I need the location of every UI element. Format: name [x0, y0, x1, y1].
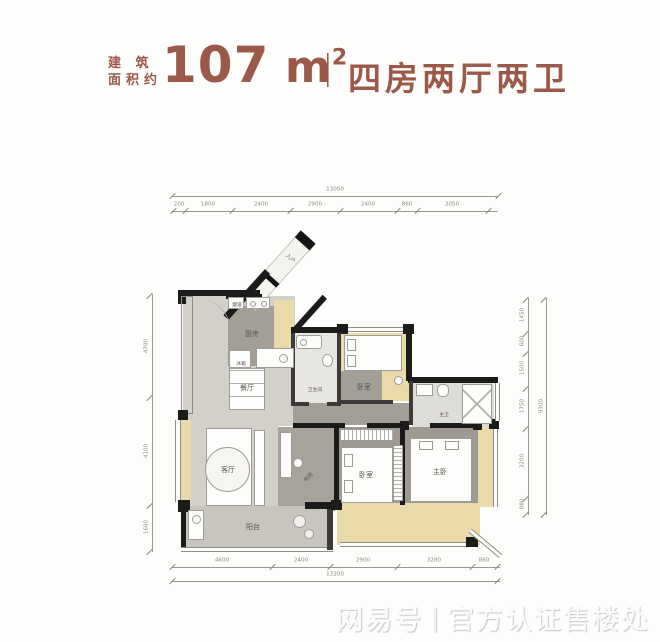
watermark-brand: 网易号	[336, 598, 423, 637]
left-shelf-hatch	[181, 296, 193, 414]
bathroom-label: 卫生间	[308, 385, 322, 392]
dim-bottom-total: 13200	[326, 571, 344, 577]
area-prefix-line2: 面积约	[108, 72, 162, 89]
area-value: 107 m2	[162, 36, 348, 94]
flue-label: 烟道	[232, 300, 242, 307]
pillow	[344, 454, 353, 467]
washer-drum-icon	[192, 515, 201, 524]
dim-right-seg: 1500	[519, 361, 525, 375]
dim-left-seg: 1600	[143, 520, 149, 534]
dim-top-total-line	[172, 196, 498, 197]
dim-left-line	[152, 294, 153, 552]
study-chair	[293, 458, 303, 468]
plant-icon	[293, 515, 306, 528]
dim-bottom-total-line	[172, 581, 500, 582]
entry-corridor-cap	[295, 230, 316, 250]
pillow	[419, 441, 433, 450]
watermark-separator: |	[431, 604, 439, 632]
master-bath-sink	[416, 384, 433, 396]
stove	[246, 297, 270, 309]
dim-top-seg: 3050	[445, 201, 459, 207]
dim-top-seg: 1800	[201, 201, 215, 207]
bath-bottom-wall-r	[327, 402, 341, 406]
living-bay-cream	[181, 420, 191, 504]
master-bay-window	[493, 427, 498, 507]
burner-icon	[250, 301, 256, 307]
bedroom-top-right-wall	[406, 327, 412, 381]
balcony-glass	[181, 547, 333, 552]
threshold-wall	[305, 502, 331, 509]
dim-top-seg: 2400	[254, 201, 268, 207]
area-prefix-line1: 建 筑	[108, 55, 162, 72]
dim-right-seg: 3200	[519, 454, 525, 468]
watermark: 网易号 | 官方认证售楼处	[336, 598, 650, 637]
bath-top-wall	[291, 327, 339, 333]
study-bed2-wall	[334, 427, 339, 505]
bedroom2-wardrobe	[340, 429, 394, 441]
area-exponent: 2	[332, 45, 348, 70]
master-bath-toilet	[437, 384, 449, 397]
master-bath-label: 主卫	[439, 410, 449, 417]
dim-right-total: 9300	[538, 399, 544, 413]
dim-bottom-seg: 4600	[215, 557, 229, 563]
bedroom-top-window	[347, 327, 405, 332]
bedroom-top-label: 卧室	[357, 382, 371, 392]
dim-bottom-seg-line	[172, 567, 500, 568]
dim-bottom-seg: 860	[479, 557, 490, 563]
study-desk	[280, 432, 292, 478]
pillow	[344, 480, 353, 493]
tv-console	[254, 430, 265, 506]
master-bath-window	[495, 383, 500, 421]
toilet-icon	[322, 354, 333, 367]
drain-icon	[300, 339, 307, 346]
bedroom-top-bottom-wall	[341, 400, 393, 404]
dim-right-seg: 600	[519, 336, 525, 347]
master-bath-top-wall	[408, 377, 498, 383]
fridge-label: 冰箱	[236, 359, 246, 366]
pillow	[347, 355, 356, 367]
pillow	[347, 339, 356, 351]
dim-top-seg: 200	[174, 201, 185, 207]
shower-stall	[462, 384, 492, 424]
kitchen-label: 厨房	[245, 329, 259, 339]
master-bedroom-label: 主卧	[433, 467, 447, 477]
dim-top-total: 13050	[326, 186, 344, 192]
balcony-right-wall	[327, 508, 333, 550]
balcony-left-wall	[181, 510, 186, 550]
wall-chunk-bedtop-r	[403, 324, 414, 334]
dim-top-seg: 2400	[361, 201, 375, 207]
dim-top-seg-line	[172, 211, 498, 212]
bath-bottom-wall-l	[291, 402, 309, 406]
entry-label: 入户	[284, 251, 297, 264]
washer	[188, 510, 204, 540]
kitchen-sink-counter	[256, 348, 294, 368]
dim-left-seg: 4100	[143, 444, 149, 458]
dim-right-seg: 1750	[519, 399, 525, 413]
bedroom2-nightstand-column	[393, 445, 403, 501]
bedroom2-label: 卧室	[359, 470, 373, 480]
dim-top-seg: 860	[402, 201, 413, 207]
dim-right-total-line	[546, 298, 547, 515]
header-divider: |	[322, 48, 333, 88]
living-label: 客厅	[221, 465, 235, 475]
dim-tick	[522, 512, 528, 518]
dim-bottom-seg: 2400	[294, 557, 308, 563]
dim-top-seg: 2900	[308, 201, 322, 207]
dim-tick	[540, 512, 546, 518]
living-bay-window	[175, 420, 181, 502]
bedroom-top-bed	[344, 335, 402, 371]
master-bath-left-wall	[409, 381, 413, 425]
bath-left-wall	[291, 333, 295, 405]
bathtub	[296, 335, 322, 349]
dim-bottom-seg: 3280	[427, 557, 441, 563]
dim-tick	[146, 549, 152, 555]
bedrooms-window	[340, 542, 468, 547]
dim-bottom-seg: 2900	[356, 557, 370, 563]
watermark-label: 官方认证售楼处	[447, 598, 650, 637]
area-prefix: 建 筑 面积约	[108, 55, 162, 89]
pillow	[445, 441, 459, 450]
dim-right-seg: 1450	[519, 308, 525, 322]
bath-right-wall	[337, 333, 341, 405]
corridor-wall-2	[367, 423, 403, 428]
dining-label: 餐厅	[240, 383, 254, 393]
layout-text: 四房两厅两卫	[348, 52, 570, 100]
fridge: 冰箱	[229, 350, 251, 368]
burner-icon	[261, 301, 267, 307]
dim-left-seg: 4700	[143, 339, 149, 353]
dim-right-seg: 880	[519, 499, 525, 510]
dim-tick	[495, 193, 501, 199]
nightstand-icon	[394, 376, 403, 385]
wall-chunk-left-mid	[178, 410, 188, 420]
flue-box: 烟道	[228, 297, 244, 309]
bedrooms-bay-cream	[337, 503, 480, 545]
plant-icon	[304, 529, 314, 539]
balcony-label: 阳台	[246, 522, 260, 532]
corridor-floor	[293, 403, 412, 425]
sink-icon	[279, 354, 288, 363]
